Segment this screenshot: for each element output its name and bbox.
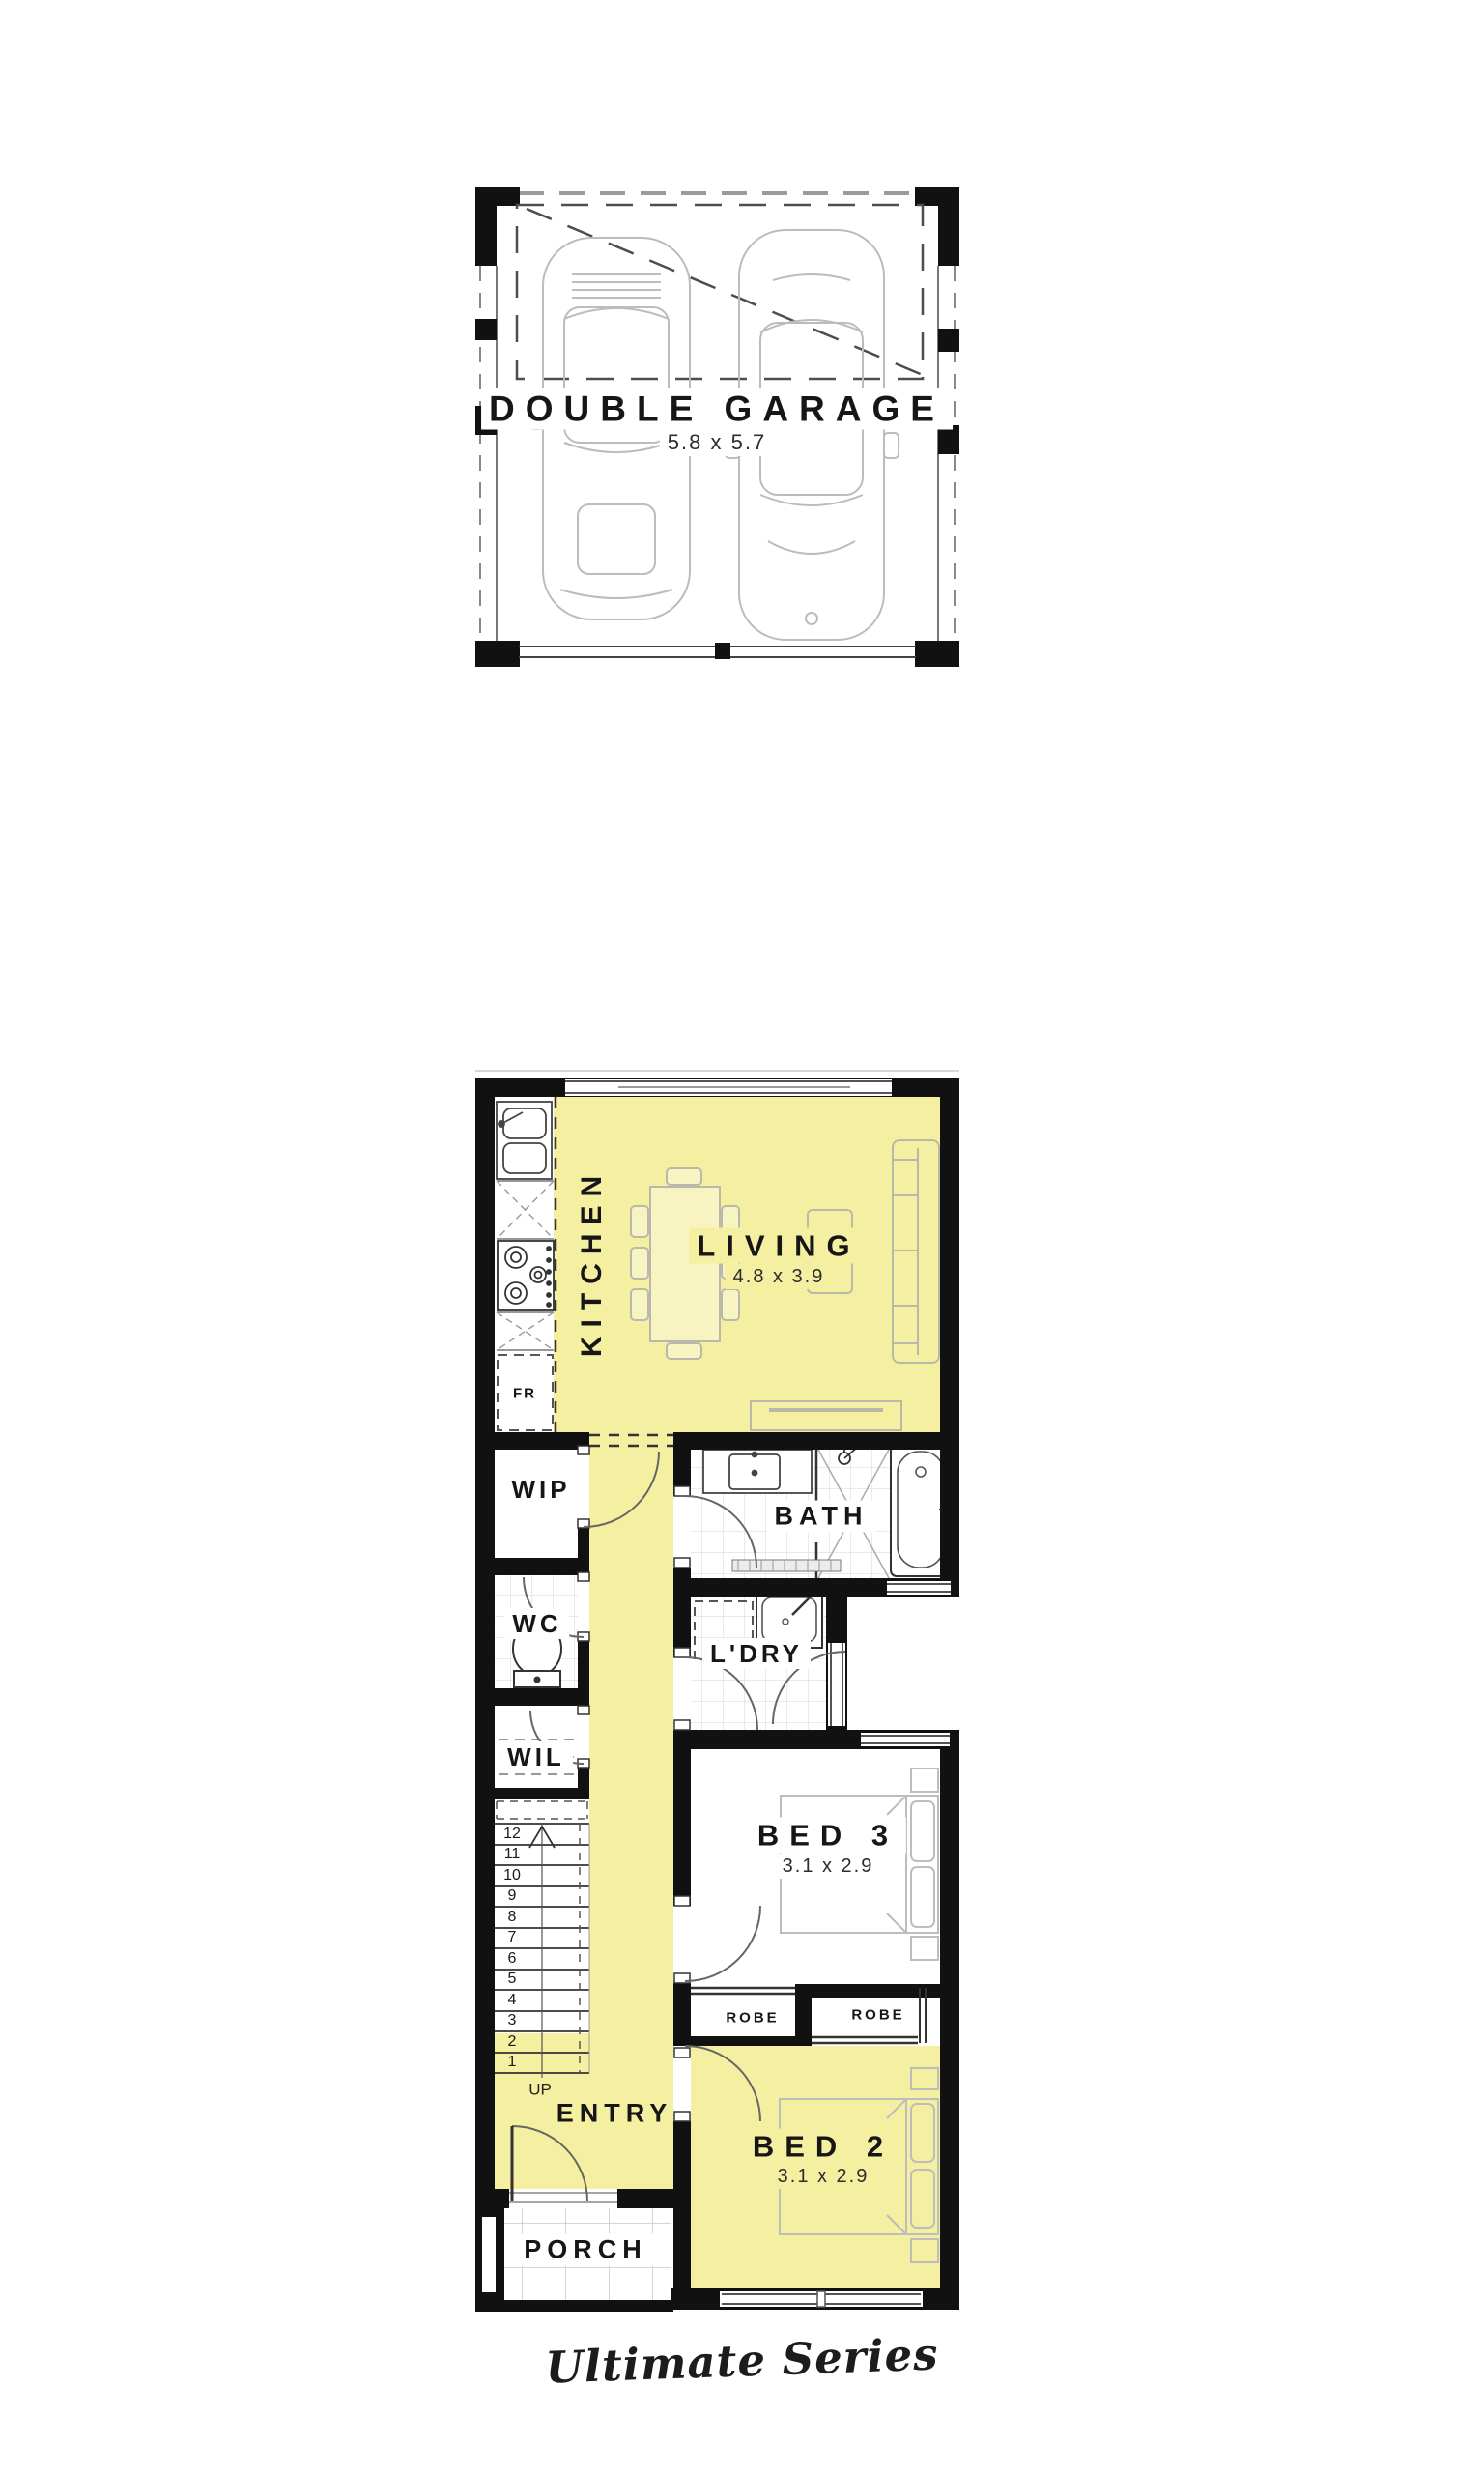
kitchen-sink (497, 1102, 552, 1179)
stair-numbers: 12 11 10 9 8 7 6 5 4 3 2 1 (496, 1824, 528, 2073)
living-dimensions: 4.8 x 3.9 (726, 1264, 833, 1289)
stair-number: 6 (496, 1948, 528, 1970)
wc-label: WC (504, 1608, 569, 1639)
laundry-label: L'DRY (702, 1638, 811, 1669)
stair-number: 12 (496, 1824, 528, 1845)
cooktop (498, 1241, 554, 1310)
kitchen-bench (497, 1097, 556, 1432)
stair-number: 5 (496, 1970, 528, 1991)
stair-number: 1 (496, 2053, 528, 2074)
stair-number: 9 (496, 1886, 528, 1908)
stair-number: 3 (496, 2011, 528, 2032)
bath-vanity (703, 1450, 812, 1493)
stair-number: 8 (496, 1907, 528, 1928)
towel-rail (732, 1560, 841, 1571)
stair-number: 10 (496, 1865, 528, 1886)
fridge-label: FR (513, 1387, 536, 1401)
bed2-dimensions: 3.1 x 2.9 (770, 2164, 877, 2189)
wip-label: WIP (511, 1477, 570, 1502)
stair-number: 11 (496, 1845, 528, 1866)
stair-number: 2 (496, 2031, 528, 2053)
floorplan-page: DOUBLE GARAGE 5.8 x 5.7 KITCHEN LIVING 4… (0, 0, 1484, 2474)
bench-x1 (497, 1181, 554, 1239)
stair-number: 7 (496, 1928, 528, 1949)
wil-label: WIL (499, 1741, 573, 1772)
robe-bed3-label: ROBE (726, 2011, 779, 2026)
garage-room-label: DOUBLE GARAGE (481, 388, 953, 430)
bed3-dimensions: 3.1 x 2.9 (775, 1854, 882, 1879)
porch-label: PORCH (516, 2234, 655, 2266)
bench-x2 (497, 1312, 554, 1350)
entry-label: ENTRY (556, 2101, 673, 2127)
living-label: LIVING (689, 1228, 868, 1264)
meter-box (482, 2217, 496, 2292)
robe-bed2-label: ROBE (851, 2008, 904, 2023)
bath-label: BATH (767, 1501, 876, 1533)
bed2-label: BED 2 (745, 2129, 901, 2165)
kitchen-label: KITCHEN (578, 1167, 607, 1357)
bed3-label: BED 3 (750, 1818, 906, 1854)
garage-dimensions: 5.8 x 5.7 (660, 429, 774, 456)
stairs-up-label: UP (528, 2082, 552, 2098)
stair-number: 4 (496, 1990, 528, 2011)
